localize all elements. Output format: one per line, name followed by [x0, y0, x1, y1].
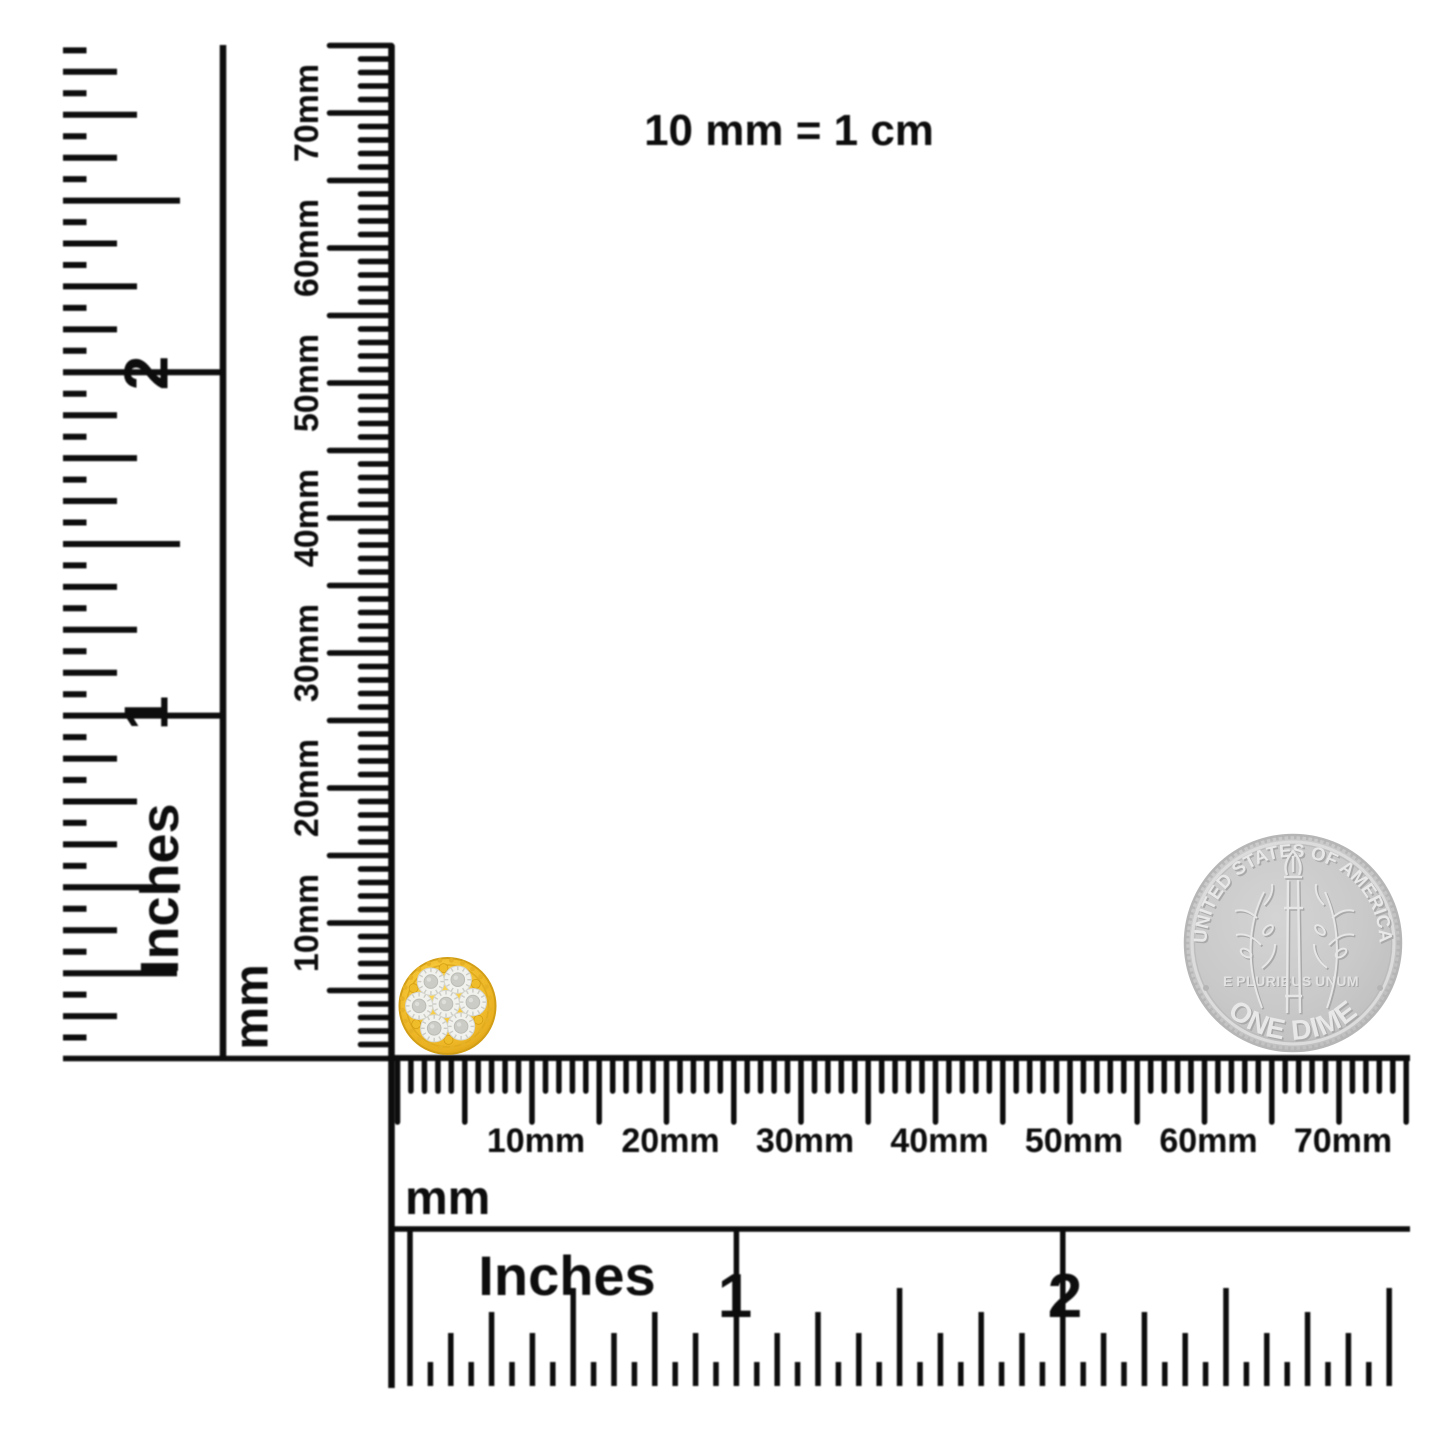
svg-text:Inches: Inches [478, 1244, 655, 1307]
svg-text:10mm: 10mm [288, 874, 326, 972]
svg-text:70mm: 70mm [288, 64, 326, 162]
svg-text:10 mm = 1 cm: 10 mm = 1 cm [644, 106, 934, 155]
svg-text:70mm: 70mm [1294, 1122, 1392, 1160]
svg-text:Inches: Inches [130, 803, 190, 974]
svg-text:40mm: 40mm [890, 1122, 988, 1160]
svg-text:2: 2 [113, 356, 182, 390]
svg-text:1: 1 [718, 1262, 752, 1331]
svg-text:E PLURIBUS UNUM: E PLURIBUS UNUM [1223, 973, 1359, 989]
svg-text:mm: mm [405, 1172, 490, 1225]
svg-text:20mm: 20mm [621, 1122, 719, 1160]
svg-text:mm: mm [226, 964, 279, 1049]
svg-text:10mm: 10mm [487, 1122, 585, 1160]
svg-text:60mm: 60mm [288, 199, 326, 297]
svg-text:60mm: 60mm [1159, 1122, 1257, 1160]
svg-text:30mm: 30mm [756, 1122, 854, 1160]
svg-text:40mm: 40mm [288, 469, 326, 567]
svg-text:50mm: 50mm [288, 334, 326, 432]
svg-text:50mm: 50mm [1025, 1122, 1123, 1160]
svg-text:2: 2 [1048, 1262, 1082, 1331]
svg-text:20mm: 20mm [288, 739, 326, 837]
svg-text:30mm: 30mm [288, 604, 326, 702]
svg-text:1: 1 [113, 696, 182, 730]
